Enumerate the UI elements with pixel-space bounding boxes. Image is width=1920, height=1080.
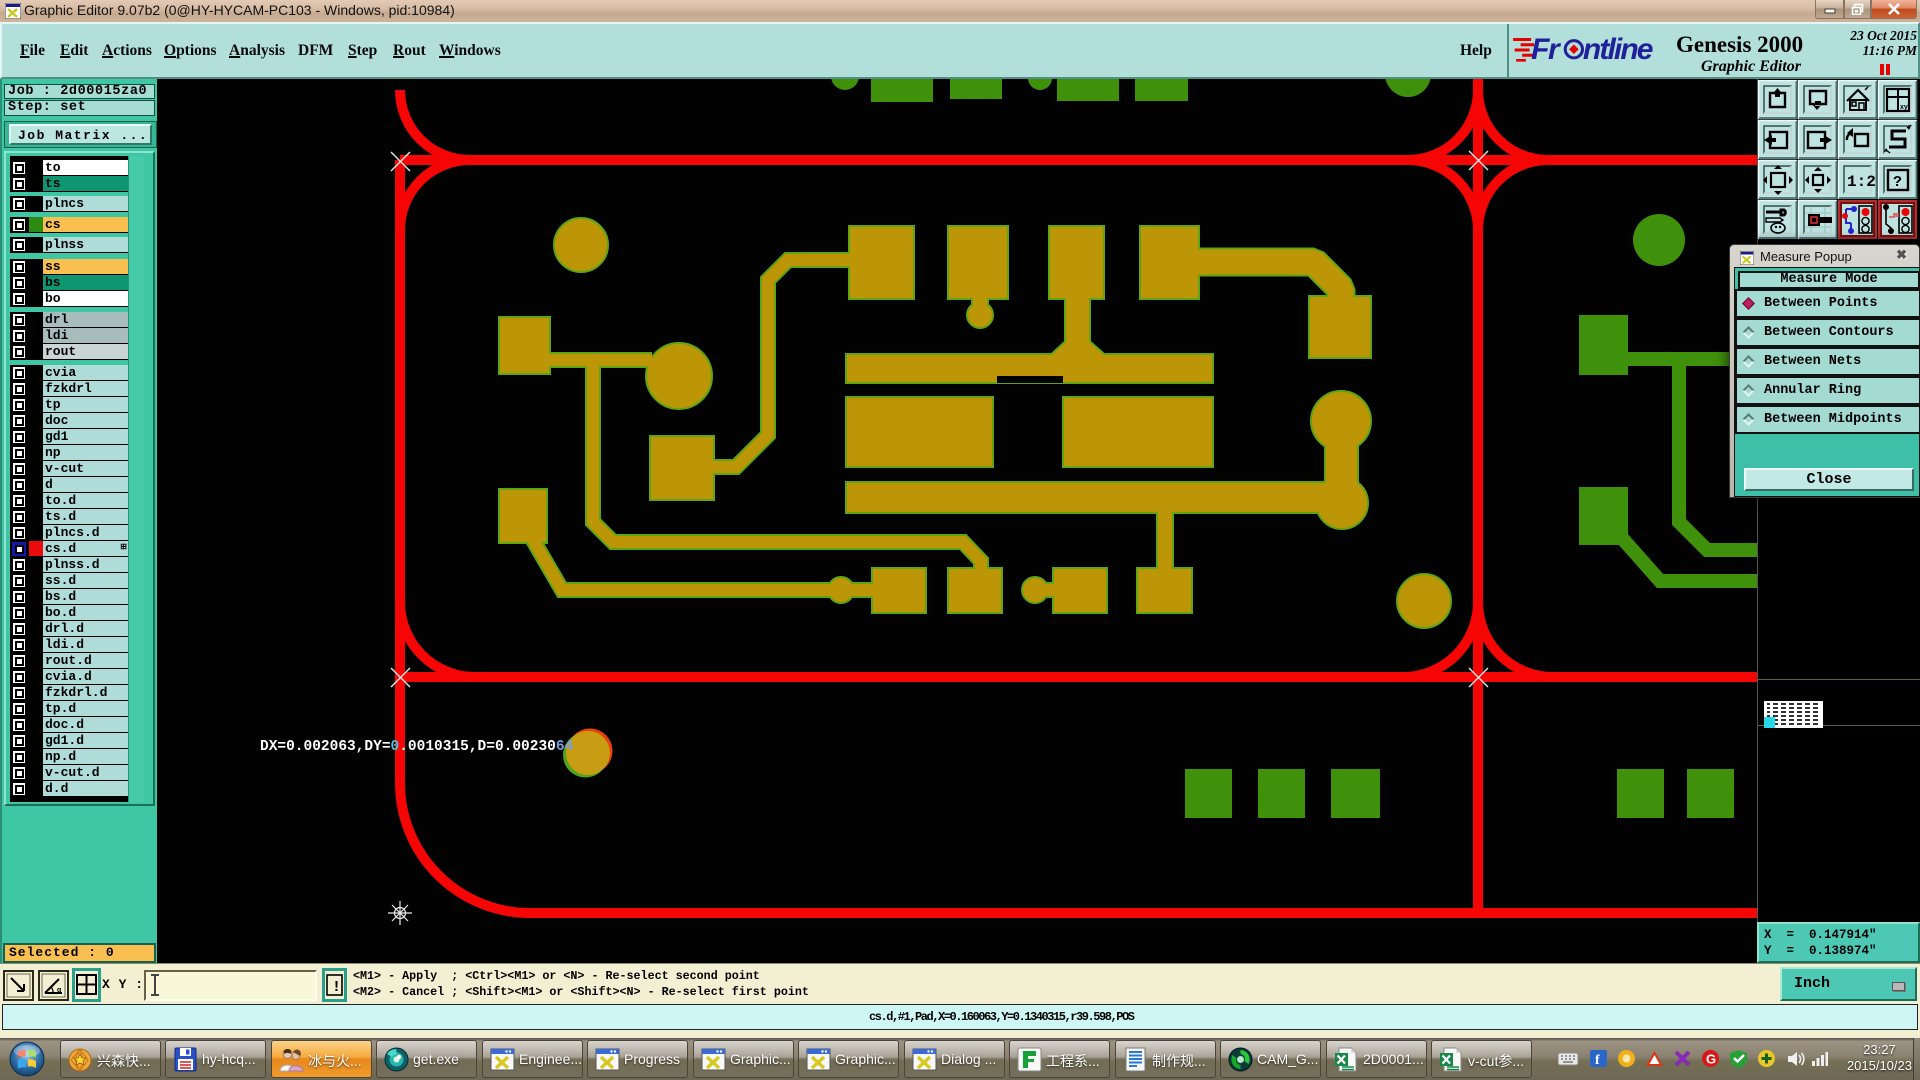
svg-text:f: f [1595, 1053, 1600, 1068]
svg-text:G: G [1706, 1052, 1716, 1067]
svg-text:?: ? [1893, 174, 1902, 191]
svg-text:1:2: 1:2 [1847, 173, 1876, 191]
svg-text:!: ! [332, 979, 341, 996]
svg-text:DX=0.002063,DY=0.0010315,D=0.0: DX=0.002063,DY=0.0010315,D=0.0023064 [260, 739, 574, 755]
svg-text:xy: xy [1900, 104, 1908, 111]
svg-text:Fr: Fr [1531, 33, 1562, 65]
svg-text:α: α [57, 987, 62, 994]
svg-text:ntline: ntline [1583, 33, 1653, 65]
